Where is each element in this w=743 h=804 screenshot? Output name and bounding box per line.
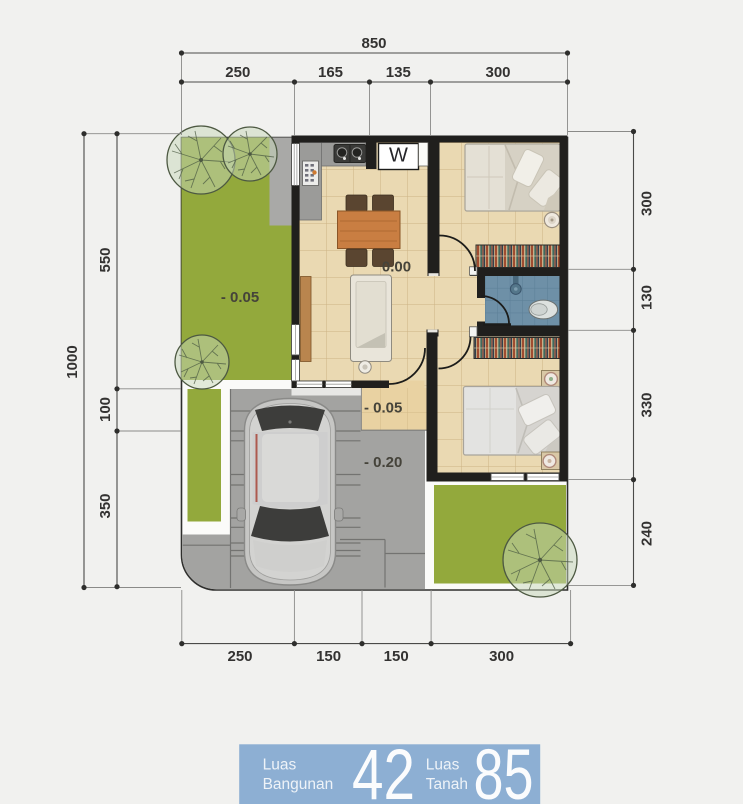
svg-text:Luas: Luas: [426, 757, 460, 774]
svg-text:850: 850: [361, 35, 386, 52]
svg-text:150: 150: [384, 648, 409, 665]
svg-text:300: 300: [485, 64, 510, 81]
svg-text:100: 100: [97, 397, 114, 422]
svg-text:330: 330: [639, 392, 656, 417]
svg-text:350: 350: [97, 493, 114, 518]
svg-text:250: 250: [225, 64, 250, 81]
svg-text:0.00: 0.00: [382, 259, 411, 276]
svg-text:130: 130: [639, 285, 656, 310]
svg-text:300: 300: [489, 648, 514, 665]
svg-text:550: 550: [97, 247, 114, 272]
svg-text:Tanah: Tanah: [426, 776, 468, 793]
svg-text:1000: 1000: [64, 345, 81, 378]
svg-text:85: 85: [474, 736, 534, 804]
svg-text:Luas: Luas: [263, 757, 297, 774]
svg-text:165: 165: [318, 64, 343, 81]
svg-text:- 0.20: - 0.20: [364, 454, 402, 471]
svg-text:150: 150: [316, 648, 341, 665]
svg-text:300: 300: [639, 191, 656, 216]
svg-text:42: 42: [352, 736, 415, 804]
svg-text:- 0.05: - 0.05: [364, 400, 402, 417]
svg-text:240: 240: [639, 521, 656, 546]
svg-text:135: 135: [386, 64, 411, 81]
svg-text:W: W: [389, 145, 408, 167]
svg-text:250: 250: [227, 648, 252, 665]
svg-text:- 0.05: - 0.05: [221, 289, 259, 306]
svg-text:Bangunan: Bangunan: [263, 776, 334, 793]
